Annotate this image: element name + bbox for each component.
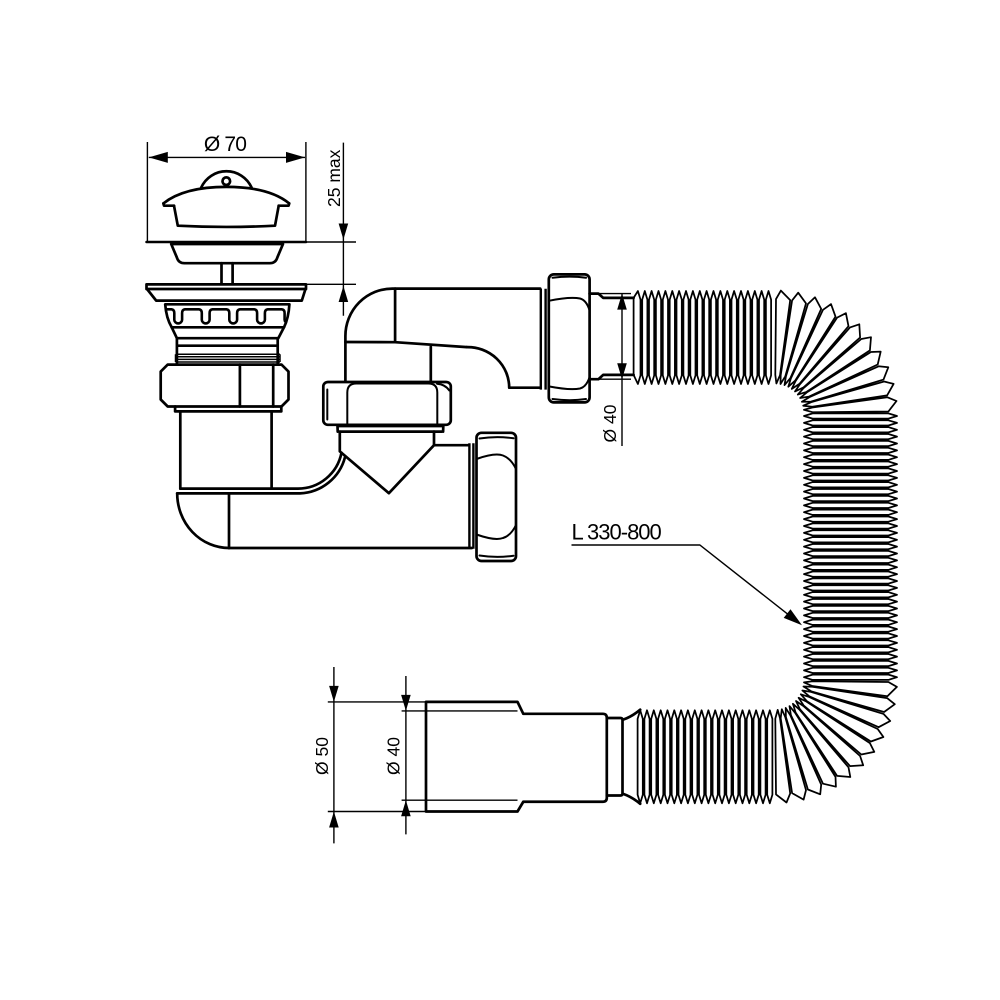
svg-text:Ø 50: Ø 50	[312, 737, 332, 775]
svg-text:Ø 70: Ø 70	[204, 133, 246, 156]
svg-text:25 max: 25 max	[324, 149, 344, 207]
svg-text:Ø 40: Ø 40	[383, 737, 403, 775]
svg-text:Ø 40: Ø 40	[600, 404, 620, 442]
svg-text:L 330-800: L 330-800	[572, 520, 662, 545]
